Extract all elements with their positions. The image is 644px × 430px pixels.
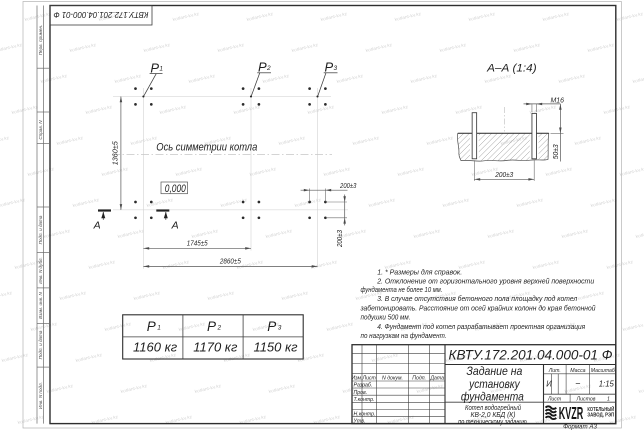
svg-text:1150 кг: 1150 кг xyxy=(253,340,298,355)
svg-text:200±3: 200±3 xyxy=(335,229,344,247)
svg-text:kotlant-kv.kz: kotlant-kv.kz xyxy=(320,11,347,22)
svg-text:kotlant-kv.kz: kotlant-kv.kz xyxy=(616,11,643,22)
svg-text:Листов: Листов xyxy=(576,396,596,402)
svg-text:Масштаб: Масштаб xyxy=(591,368,616,374)
svg-text:kotlant-kv.kz: kotlant-kv.kz xyxy=(326,321,353,332)
svg-text:2: 2 xyxy=(266,65,271,72)
svg-text:kotlant-kv.kz: kotlant-kv.kz xyxy=(542,11,569,22)
svg-text:kotlant-kv.kz: kotlant-kv.kz xyxy=(194,383,221,394)
svg-text:N докум.: N докум. xyxy=(382,375,403,381)
svg-text:Задание на: Задание на xyxy=(466,364,522,378)
svg-text:kotlant-kv.kz: kotlant-kv.kz xyxy=(101,166,128,177)
svg-text:А: А xyxy=(171,219,179,231)
svg-text:kotlant-kv.kz: kotlant-kv.kz xyxy=(0,42,23,53)
svg-text:kotlant-kv.kz: kotlant-kv.kz xyxy=(558,73,585,84)
svg-text:2: 2 xyxy=(217,325,222,332)
svg-text:М16: М16 xyxy=(551,96,565,105)
svg-text:Масса: Масса xyxy=(570,368,585,374)
svg-text:kotlant-kv.kz: kotlant-kv.kz xyxy=(11,104,38,115)
svg-text:kotlant-kv.kz: kotlant-kv.kz xyxy=(246,11,273,22)
svg-text:Дата: Дата xyxy=(429,375,444,381)
svg-text:Лист: Лист xyxy=(362,375,377,381)
svg-text:kotlant-kv.kz: kotlant-kv.kz xyxy=(281,290,308,301)
svg-text:1360±5: 1360±5 xyxy=(110,140,119,165)
svg-text:Лит.: Лит. xyxy=(548,368,561,374)
svg-text:1160 кг: 1160 кг xyxy=(133,340,178,355)
svg-text:Ось симметрии котла: Ось симметрии котла xyxy=(156,142,257,154)
svg-text:kotlant-kv.kz: kotlant-kv.kz xyxy=(1,352,28,363)
svg-text:kotlant-kv.kz: kotlant-kv.kz xyxy=(590,197,617,208)
svg-text:1745±5: 1745±5 xyxy=(187,239,209,248)
svg-text:kotlant-kv.kz: kotlant-kv.kz xyxy=(178,321,205,332)
svg-text:Формат А3: Формат А3 xyxy=(563,423,597,430)
svg-text:kotlant-kv.kz: kotlant-kv.kz xyxy=(133,290,160,301)
svg-text:Р: Р xyxy=(147,319,156,334)
svg-text:КВТУ.172.201.04.000-01 Ф: КВТУ.172.201.04.000-01 Ф xyxy=(449,348,613,363)
svg-text:1: 1 xyxy=(157,325,161,332)
svg-text:Р: Р xyxy=(267,319,276,334)
svg-text:забетонировать. Расстояние от: забетонировать. Расстояние от осей крайн… xyxy=(360,303,597,312)
svg-text:1. * Размеры для справок.: 1. * Размеры для справок. xyxy=(377,267,462,276)
svg-text:kotlant-kv.kz: kotlant-kv.kz xyxy=(75,352,102,363)
svg-text:Р: Р xyxy=(258,60,267,75)
svg-text:kotlant-kv.kz: kotlant-kv.kz xyxy=(104,321,131,332)
svg-text:2860±5: 2860±5 xyxy=(219,257,242,266)
svg-text:kotlant-kv.kz: kotlant-kv.kz xyxy=(561,228,588,239)
svg-text:kotlant-kv.kz: kotlant-kv.kz xyxy=(368,197,395,208)
svg-text:kotlant-kv.kz: kotlant-kv.kz xyxy=(175,166,202,177)
svg-text:Р: Р xyxy=(325,60,334,75)
svg-text:kotlant-kv.kz: kotlant-kv.kz xyxy=(307,104,334,115)
svg-text:kotlant-kv.kz: kotlant-kv.kz xyxy=(619,166,644,177)
svg-text:kotlant-kv.kz: kotlant-kv.kz xyxy=(632,73,644,84)
svg-text:Инв. N подл.: Инв. N подл. xyxy=(38,382,43,409)
svg-text:kotlant-kv.kz: kotlant-kv.kz xyxy=(513,42,540,53)
svg-text:kotlant-kv.kz: kotlant-kv.kz xyxy=(43,228,70,239)
svg-text:kotlant-kv.kz: kotlant-kv.kz xyxy=(545,166,572,177)
svg-text:4. Фундамент под котел разраб: 4. Фундамент под котел разрабатывает про… xyxy=(377,322,585,331)
svg-text:kotlant-kv.kz: kotlant-kv.kz xyxy=(0,290,13,301)
svg-text:Изм.: Изм. xyxy=(351,375,362,381)
svg-text:kotlant-kv.kz: kotlant-kv.kz xyxy=(439,42,466,53)
svg-text:1: 1 xyxy=(159,66,163,73)
svg-text:kotlant-kv.kz: kotlant-kv.kz xyxy=(291,42,318,53)
svg-text:kotlant-kv.kz: kotlant-kv.kz xyxy=(352,135,379,146)
svg-text:kotlant-kv.kz: kotlant-kv.kz xyxy=(17,414,44,425)
svg-text:kotlant-kv.kz: kotlant-kv.kz xyxy=(114,73,141,84)
svg-text:kotlant-kv.kz: kotlant-kv.kz xyxy=(162,259,189,270)
svg-text:Подп. и дата: Подп. и дата xyxy=(38,215,43,244)
svg-text:–: – xyxy=(575,378,581,387)
svg-text:Разраб.: Разраб. xyxy=(354,383,373,389)
svg-text:3: 3 xyxy=(278,325,282,332)
svg-text:kotlant-kv.kz: kotlant-kv.kz xyxy=(603,104,630,115)
svg-text:kotlant-kv.kz: kotlant-kv.kz xyxy=(117,228,144,239)
svg-text:Перв. примен.: Перв. примен. xyxy=(38,25,43,56)
svg-text:kotlant-kv.kz: kotlant-kv.kz xyxy=(278,135,305,146)
svg-text:kotlant-kv.kz: kotlant-kv.kz xyxy=(635,228,644,239)
svg-text:50±3: 50±3 xyxy=(551,144,560,160)
svg-text:по нагрузкам на фундамент.: по нагрузкам на фундамент. xyxy=(361,331,447,340)
svg-text:kotlant-kv.kz: kotlant-kv.kz xyxy=(59,290,86,301)
svg-text:kotlant-kv.kz: kotlant-kv.kz xyxy=(487,228,514,239)
svg-text:kotlant-kv.kz: kotlant-kv.kz xyxy=(442,197,469,208)
svg-text:kotlant-kv.kz: kotlant-kv.kz xyxy=(336,73,363,84)
svg-text:kotlant-kv.kz: kotlant-kv.kz xyxy=(416,383,443,394)
svg-text:kotlant-kv.kz: kotlant-kv.kz xyxy=(143,42,170,53)
svg-text:kotlant-kv.kz: kotlant-kv.kz xyxy=(217,42,244,53)
svg-text:И: И xyxy=(546,379,552,388)
svg-text:kotlant-kv.kz: kotlant-kv.kz xyxy=(69,42,96,53)
svg-text:kotlant-kv.kz: kotlant-kv.kz xyxy=(532,259,559,270)
svg-text:1:15: 1:15 xyxy=(599,379,615,388)
svg-text:Взам. инв. N: Взам. инв. N xyxy=(38,291,43,318)
svg-text:КВТУ.172.201.04.000-01 Ф: КВТУ.172.201.04.000-01 Ф xyxy=(53,10,148,20)
svg-text:kotlant-kv.kz: kotlant-kv.kz xyxy=(516,197,543,208)
svg-text:1170 кг: 1170 кг xyxy=(193,340,238,355)
svg-text:kotlant-kv.kz: kotlant-kv.kz xyxy=(249,166,276,177)
svg-text:Пров.: Пров. xyxy=(354,390,368,396)
svg-text:kotlant-kv.kz: kotlant-kv.kz xyxy=(0,135,10,146)
svg-text:kotlant-kv.kz: kotlant-kv.kz xyxy=(207,290,234,301)
svg-text:kotlant-kv.kz: kotlant-kv.kz xyxy=(426,135,453,146)
svg-text:200±3: 200±3 xyxy=(494,170,514,179)
svg-text:kotlant-kv.kz: kotlant-kv.kz xyxy=(458,259,485,270)
svg-text:3. В случае отсутствия бетонн: 3. В случае отсутствия бетонного пола пл… xyxy=(377,294,578,303)
svg-text:kotlant-kv.kz: kotlant-kv.kz xyxy=(268,383,295,394)
svg-text:kotlant-kv.kz: kotlant-kv.kz xyxy=(310,259,337,270)
svg-text:kotlant-kv.kz: kotlant-kv.kz xyxy=(188,73,215,84)
svg-text:kotlant-kv.kz: kotlant-kv.kz xyxy=(638,383,644,394)
svg-text:А: А xyxy=(93,219,101,231)
svg-text:Н.контр.: Н.контр. xyxy=(354,411,376,417)
svg-text:kotlant-kv.kz: kotlant-kv.kz xyxy=(40,73,67,84)
svg-text:ЗАВОД, РЭП: ЗАВОД, РЭП xyxy=(587,412,614,418)
svg-text:kotlant-kv.kz: kotlant-kv.kz xyxy=(191,228,218,239)
svg-text:1: 1 xyxy=(607,396,610,402)
svg-text:Лист: Лист xyxy=(547,396,562,402)
svg-text:по техническому заданию: по техническому заданию xyxy=(458,418,527,426)
svg-text:Р: Р xyxy=(207,319,216,334)
svg-text:Инв. N дубл.: Инв. N дубл. xyxy=(38,257,43,284)
svg-text:kotlant-kv.kz: kotlant-kv.kz xyxy=(622,321,644,332)
svg-text:kotlant-kv.kz: kotlant-kv.kz xyxy=(88,259,115,270)
svg-text:kotlant-kv.kz: kotlant-kv.kz xyxy=(394,11,421,22)
svg-text:kotlant-kv.kz: kotlant-kv.kz xyxy=(587,42,614,53)
svg-text:kotlant-kv.kz: kotlant-kv.kz xyxy=(72,197,99,208)
svg-text:Котел водогрейный: Котел водогрейный xyxy=(465,404,521,412)
svg-text:kotlant-kv.kz: kotlant-kv.kz xyxy=(413,228,440,239)
svg-text:kotlant-kv.kz: kotlant-kv.kz xyxy=(397,166,424,177)
svg-text:kotlant-kv.kz: kotlant-kv.kz xyxy=(484,73,511,84)
svg-text:kotlant-kv.kz: kotlant-kv.kz xyxy=(56,135,83,146)
svg-text:kotlant-kv.kz: kotlant-kv.kz xyxy=(172,11,199,22)
svg-text:Т.контр.: Т.контр. xyxy=(354,397,375,403)
svg-text:kotlant-kv.kz: kotlant-kv.kz xyxy=(297,352,324,363)
svg-text:kotlant-kv.kz: kotlant-kv.kz xyxy=(130,135,157,146)
svg-text:kotlant-kv.kz: kotlant-kv.kz xyxy=(455,104,482,115)
svg-text:kotlant-kv.kz: kotlant-kv.kz xyxy=(574,135,601,146)
svg-text:kotlant-kv.kz: kotlant-kv.kz xyxy=(0,197,26,208)
svg-text:kotlant-kv.kz: kotlant-kv.kz xyxy=(381,104,408,115)
svg-text:kotlant-kv.kz: kotlant-kv.kz xyxy=(159,104,186,115)
svg-text:kotlant-kv.kz: kotlant-kv.kz xyxy=(120,383,147,394)
svg-text:200±3: 200±3 xyxy=(339,181,357,190)
svg-text:kotlant-kv.kz: kotlant-kv.kz xyxy=(323,166,350,177)
svg-text:Р: Р xyxy=(150,60,159,75)
svg-text:kotlant-kv.kz: kotlant-kv.kz xyxy=(606,259,633,270)
svg-text:kotlant-kv.kz: kotlant-kv.kz xyxy=(85,104,112,115)
svg-text:kotlant-kv.kz: kotlant-kv.kz xyxy=(265,228,292,239)
svg-text:KVZR: KVZR xyxy=(559,403,584,423)
svg-text:фундамента: фундамента xyxy=(461,390,524,404)
svg-text:kotlant-kv.kz: kotlant-kv.kz xyxy=(577,290,604,301)
svg-text:kotlant-kv.kz: kotlant-kv.kz xyxy=(262,73,289,84)
svg-text:kotlant-kv.kz: kotlant-kv.kz xyxy=(24,11,51,22)
svg-text:Справ. N: Справ. N xyxy=(38,120,43,140)
svg-text:КВ-2,0 КБД (К): КВ-2,0 КБД (К) xyxy=(471,412,516,419)
svg-text:kotlant-kv.kz: kotlant-kv.kz xyxy=(468,11,495,22)
svg-text:kotlant-kv.kz: kotlant-kv.kz xyxy=(410,73,437,84)
svg-text:Утв.: Утв. xyxy=(354,418,366,424)
svg-text:3: 3 xyxy=(334,65,338,72)
svg-text:Подп. и дата: Подп. и дата xyxy=(38,330,43,359)
svg-text:А–А (1:4): А–А (1:4) xyxy=(486,62,537,74)
svg-text:0,000: 0,000 xyxy=(165,183,187,195)
svg-text:Подп.: Подп. xyxy=(412,375,426,381)
svg-text:kotlant-kv.kz: kotlant-kv.kz xyxy=(365,42,392,53)
svg-text:подушки 500 мм.: подушки 500 мм. xyxy=(361,313,411,322)
svg-text:kotlant-kv.kz: kotlant-kv.kz xyxy=(500,135,527,146)
svg-text:фундамента не более 10 мм.: фундамента не более 10 мм. xyxy=(361,285,443,294)
svg-text:kotlant-kv.kz: kotlant-kv.kz xyxy=(233,104,260,115)
